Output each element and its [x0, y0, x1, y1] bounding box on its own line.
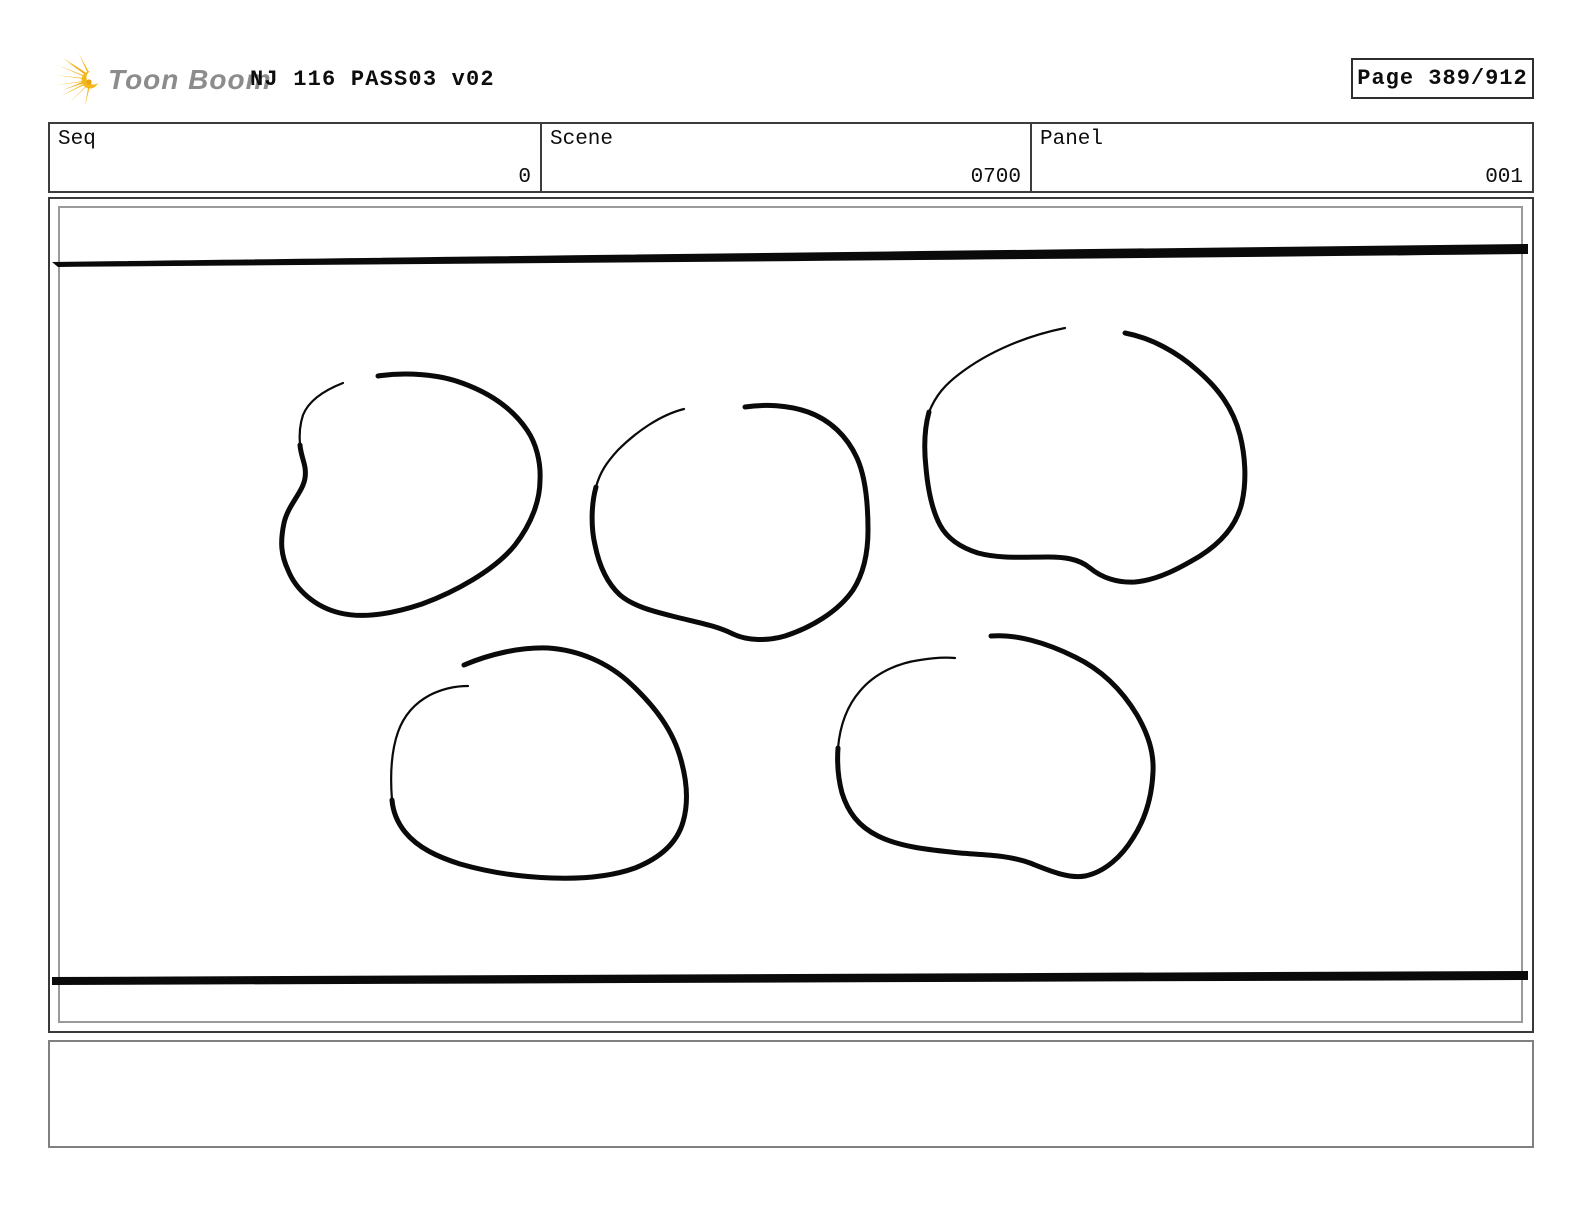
- sketch-rock-2-tail: [596, 409, 684, 487]
- sketch-bottom-ground-line: [52, 971, 1528, 985]
- sketch-rock-5-tail: [838, 658, 955, 748]
- toonboom-logo-text: Toon Boom: [108, 64, 271, 96]
- toonboom-logo: Toon Boom: [55, 52, 271, 108]
- info-table: Seq 0 Scene 0700 Panel 001: [48, 122, 1534, 193]
- seq-cell: Seq 0: [50, 124, 540, 191]
- caption-box: [48, 1040, 1534, 1148]
- sketch-rock-1-tail: [300, 383, 343, 445]
- panel-cell: Panel 001: [1030, 124, 1532, 191]
- seq-label: Seq: [58, 128, 531, 151]
- panel-sketch: [48, 197, 1534, 1033]
- sketch-rock-4-tail: [391, 686, 468, 800]
- storyboard-page: Toon Boom NJ 116 PASS03 v02 Page 389/912…: [0, 0, 1584, 1224]
- sketch-rock-4: [392, 648, 687, 878]
- project-title: NJ 116 PASS03 v02: [250, 67, 495, 92]
- sketch-rock-2: [592, 405, 868, 639]
- seq-value: 0: [58, 166, 531, 189]
- sketch-rock-3-tail: [929, 328, 1065, 412]
- scene-label: Scene: [550, 128, 1021, 151]
- page-indicator: Page 389/912: [1351, 58, 1534, 99]
- sketch-top-ground-line: [52, 244, 1528, 267]
- scene-value: 0700: [550, 166, 1021, 189]
- panel-label: Panel: [1040, 128, 1523, 151]
- sketch-rock-1: [282, 374, 540, 615]
- scene-cell: Scene 0700: [540, 124, 1030, 191]
- toonboom-starburst-icon: [55, 52, 103, 108]
- storyboard-panel-frame: [48, 197, 1534, 1033]
- sketch-rock-3: [925, 333, 1245, 582]
- panel-value: 001: [1040, 166, 1523, 189]
